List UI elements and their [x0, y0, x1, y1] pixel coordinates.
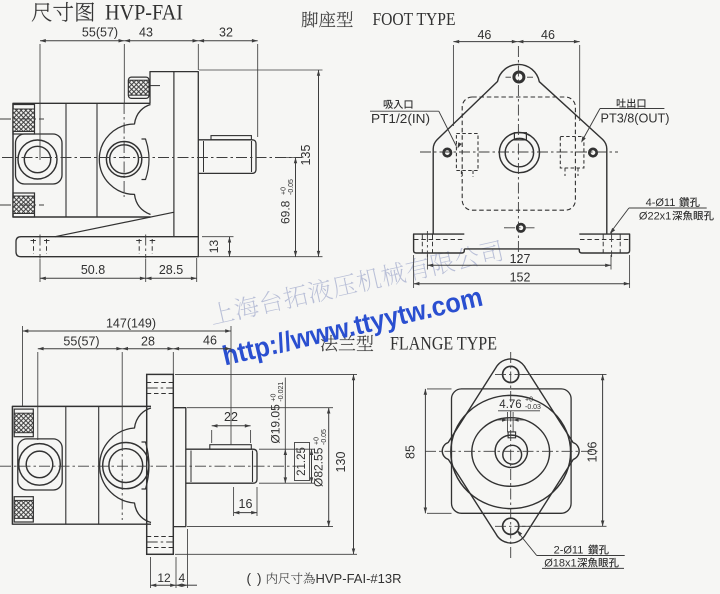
svg-text:HVP-FAI: HVP-FAI — [105, 0, 183, 25]
svg-text:16: 16 — [239, 497, 253, 511]
svg-text:4-Ø11: 4-Ø11 — [646, 197, 676, 209]
svg-text:55(57): 55(57) — [82, 26, 118, 40]
svg-text:-0.05: -0.05 — [321, 429, 328, 445]
svg-text:4: 4 — [178, 571, 185, 585]
svg-text:69.8: 69.8 — [279, 200, 293, 224]
svg-text:-0.021: -0.021 — [278, 382, 285, 402]
svg-text:147(149): 147(149) — [106, 317, 156, 331]
svg-text:135: 135 — [299, 145, 313, 166]
svg-text:Ø22x1: Ø22x1 — [639, 211, 671, 223]
svg-text:+0: +0 — [270, 394, 277, 402]
svg-text:50.8: 50.8 — [81, 263, 105, 277]
svg-text:FOOT TYPE: FOOT TYPE — [373, 9, 456, 29]
svg-text:46: 46 — [541, 28, 555, 42]
svg-text:-0.05: -0.05 — [288, 179, 295, 195]
svg-text:13: 13 — [207, 240, 221, 254]
svg-text:85: 85 — [404, 445, 418, 459]
svg-text:+0: +0 — [525, 397, 533, 404]
svg-text:): ) — [257, 571, 262, 586]
svg-text:Ø18x1: Ø18x1 — [544, 558, 576, 570]
svg-text:21.25: 21.25 — [296, 447, 308, 476]
svg-text:PT1/2(IN): PT1/2(IN) — [371, 111, 430, 126]
svg-text:FLANGE TYPE: FLANGE TYPE — [390, 334, 497, 355]
svg-text:28: 28 — [141, 335, 155, 349]
svg-text:22: 22 — [224, 410, 238, 424]
svg-text:12: 12 — [157, 571, 171, 585]
svg-text:130: 130 — [334, 452, 348, 473]
svg-text:46: 46 — [477, 28, 491, 42]
svg-text:Ø19.05: Ø19.05 — [269, 404, 283, 444]
svg-text:127: 127 — [510, 252, 531, 266]
svg-text:HVP-FAI-#13R: HVP-FAI-#13R — [316, 571, 402, 586]
svg-text:+0: +0 — [280, 187, 287, 195]
svg-text:+0: +0 — [313, 437, 320, 445]
svg-text:46: 46 — [203, 334, 217, 348]
svg-text:PT3/8(OUT): PT3/8(OUT) — [601, 111, 670, 126]
svg-text:152: 152 — [510, 271, 531, 285]
svg-text:106: 106 — [586, 442, 600, 463]
svg-text:(: ( — [247, 571, 252, 586]
svg-text:28.5: 28.5 — [159, 263, 183, 277]
svg-text:55(57): 55(57) — [63, 335, 99, 349]
svg-text:43: 43 — [139, 26, 153, 40]
svg-text:32: 32 — [219, 26, 233, 40]
svg-text:-0.03: -0.03 — [525, 404, 541, 411]
svg-text:Ø82.55: Ø82.55 — [312, 447, 326, 487]
svg-text:4.76: 4.76 — [499, 399, 521, 411]
svg-text:2-Ø11: 2-Ø11 — [554, 545, 584, 557]
